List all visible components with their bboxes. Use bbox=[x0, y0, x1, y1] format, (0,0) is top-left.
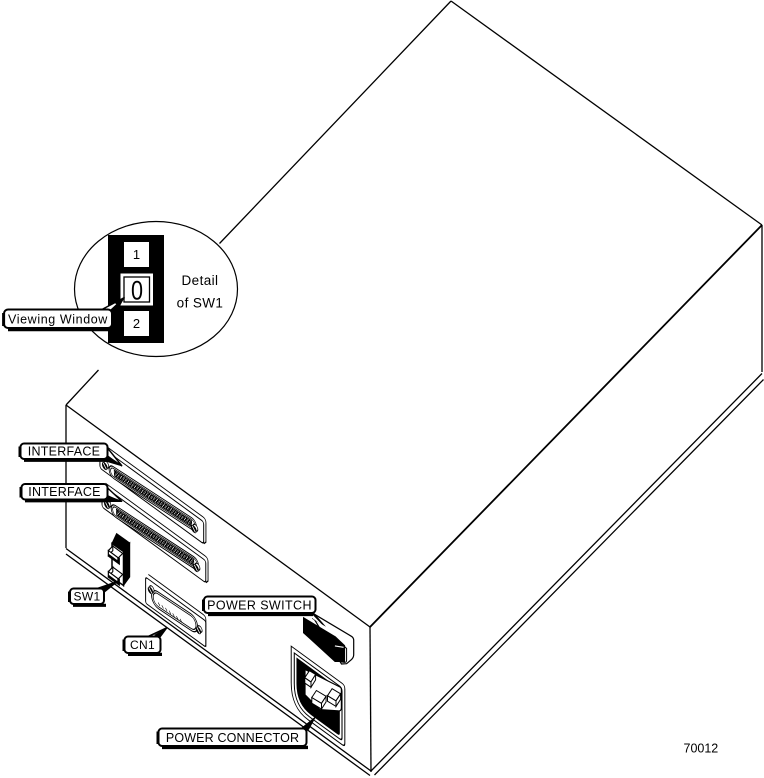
svg-text:SW1: SW1 bbox=[74, 589, 101, 603]
svg-text:1: 1 bbox=[133, 247, 140, 262]
svg-text:POWER CONNECTOR: POWER CONNECTOR bbox=[166, 731, 299, 745]
svg-text:2: 2 bbox=[133, 316, 140, 331]
svg-text:POWER SWITCH: POWER SWITCH bbox=[207, 598, 312, 612]
svg-text:Detail: Detail bbox=[182, 273, 219, 288]
svg-text:INTERFACE: INTERFACE bbox=[28, 485, 100, 499]
svg-text:CN1: CN1 bbox=[130, 638, 155, 652]
svg-text:of SW1: of SW1 bbox=[177, 296, 224, 311]
svg-text:Viewing Window: Viewing Window bbox=[8, 313, 108, 327]
svg-text:INTERFACE: INTERFACE bbox=[28, 444, 100, 458]
svg-text:70012: 70012 bbox=[684, 742, 719, 756]
svg-text:0: 0 bbox=[131, 276, 143, 306]
